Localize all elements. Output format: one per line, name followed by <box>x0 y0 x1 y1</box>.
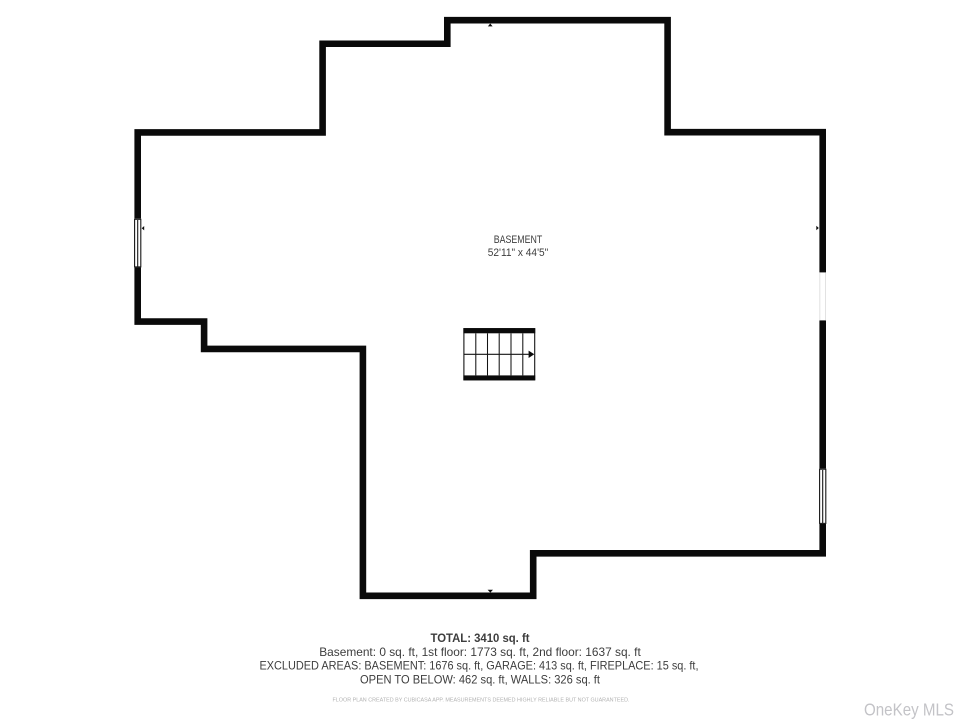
svg-text:EXCLUDED AREAS: BASEMENT: 1676: EXCLUDED AREAS: BASEMENT: 1676 sq. ft, G… <box>260 659 699 673</box>
svg-text:OneKey MLS: OneKey MLS <box>864 700 954 720</box>
svg-text:FLOOR PLAN CREATED BY CUBICASA: FLOOR PLAN CREATED BY CUBICASA APP. MEAS… <box>333 698 630 704</box>
svg-text:OPEN TO BELOW: 462 sq. ft, WAL: OPEN TO BELOW: 462 sq. ft, WALLS: 326 sq… <box>360 672 601 686</box>
svg-text:Basement: 0 sq. ft, 1st floor:: Basement: 0 sq. ft, 1st floor: 1773 sq. … <box>319 645 641 659</box>
svg-text:TOTAL: 3410 sq. ft: TOTAL: 3410 sq. ft <box>431 631 530 645</box>
svg-text:BASEMENT: BASEMENT <box>494 234 543 246</box>
svg-text:52'11" x 44'5": 52'11" x 44'5" <box>488 247 549 259</box>
